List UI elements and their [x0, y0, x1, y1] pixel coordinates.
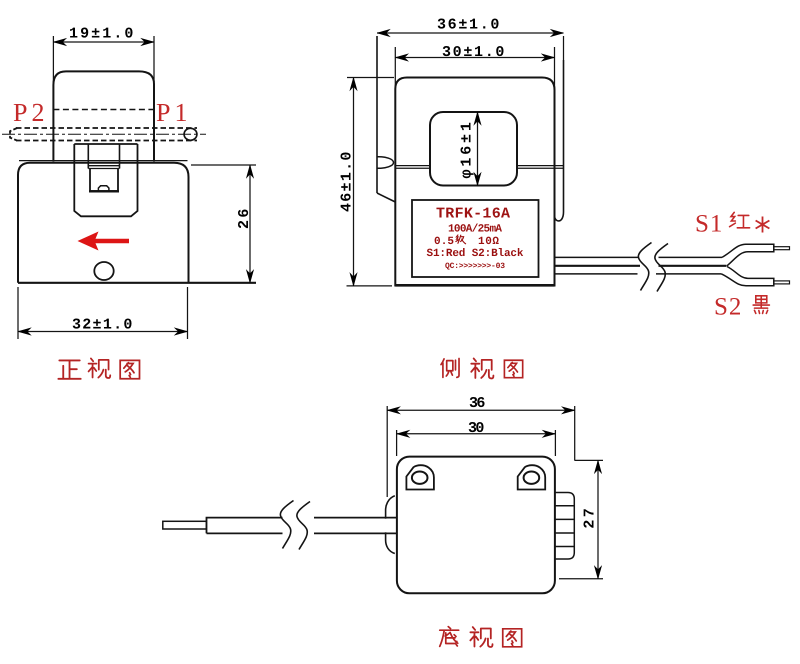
svg-text:φ16±1: φ16±1: [459, 121, 476, 179]
svg-text:30±1.0: 30±1.0: [442, 44, 506, 61]
svg-text:S1: S1: [695, 211, 723, 238]
svg-text:19±1.0: 19±1.0: [69, 26, 135, 43]
svg-text:32±1.0: 32±1.0: [72, 317, 134, 334]
svg-text:P2: P2: [13, 98, 48, 127]
svg-text:30: 30: [468, 420, 486, 437]
svg-text:36: 36: [469, 395, 487, 412]
svg-text:10Ω: 10Ω: [478, 236, 499, 248]
svg-text:S1:Red S2:Black: S1:Red S2:Black: [427, 248, 524, 260]
svg-text:P1: P1: [156, 98, 191, 127]
svg-text:36±1.0: 36±1.0: [437, 17, 501, 34]
svg-text:46±1.0: 46±1.0: [339, 150, 356, 212]
svg-text:26: 26: [236, 207, 253, 229]
svg-text:0.5: 0.5: [434, 236, 454, 248]
svg-text:TRFK-16A: TRFK-16A: [436, 206, 510, 223]
svg-text:100A/25mA: 100A/25mA: [448, 224, 502, 236]
svg-text:27: 27: [582, 507, 599, 529]
svg-text:S2: S2: [714, 294, 742, 321]
svg-text:QC:>>>>>>>-03: QC:>>>>>>>-03: [445, 262, 505, 271]
